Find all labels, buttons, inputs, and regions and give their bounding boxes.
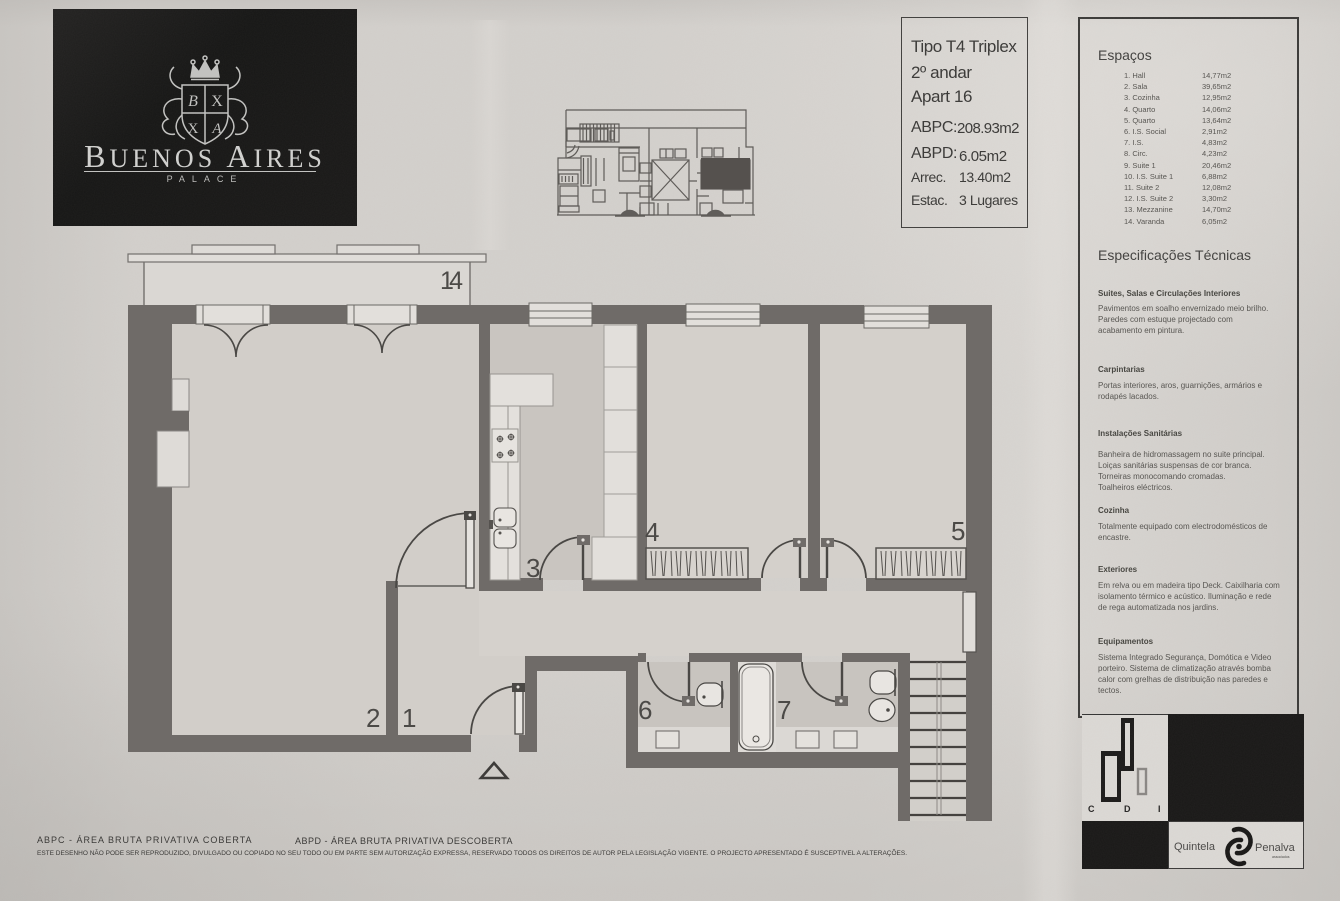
svg-text:7: 7 xyxy=(777,695,791,725)
svg-text:3: 3 xyxy=(526,553,540,583)
svg-text:14: 14 xyxy=(440,267,463,295)
svg-text:2: 2 xyxy=(366,703,380,733)
svg-text:4: 4 xyxy=(645,517,659,547)
svg-text:1: 1 xyxy=(402,703,416,733)
svg-text:5: 5 xyxy=(951,516,965,546)
svg-text:6: 6 xyxy=(638,695,652,725)
